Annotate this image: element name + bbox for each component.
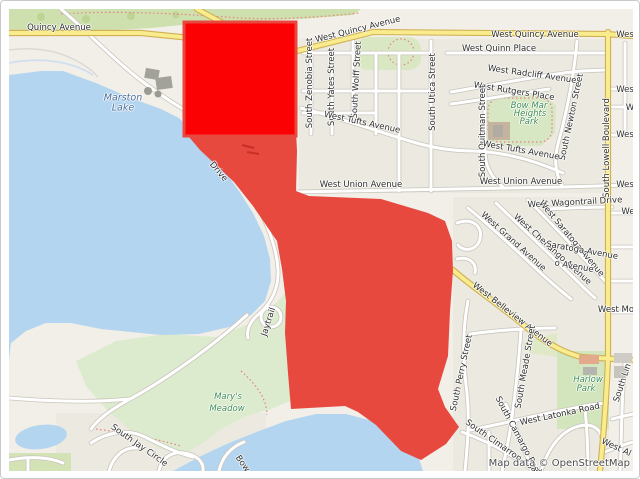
map-canvas[interactable]: Quincy AvenueWest Quincy AvenueWest Quin… <box>9 9 633 471</box>
overlay-rectangle[interactable] <box>184 22 296 136</box>
map-render <box>9 9 633 471</box>
map-viewport[interactable]: Quincy AvenueWest Quincy AvenueWest Quin… <box>0 0 640 479</box>
map-attribution[interactable]: Map data © OpenStreetMap <box>489 458 630 469</box>
